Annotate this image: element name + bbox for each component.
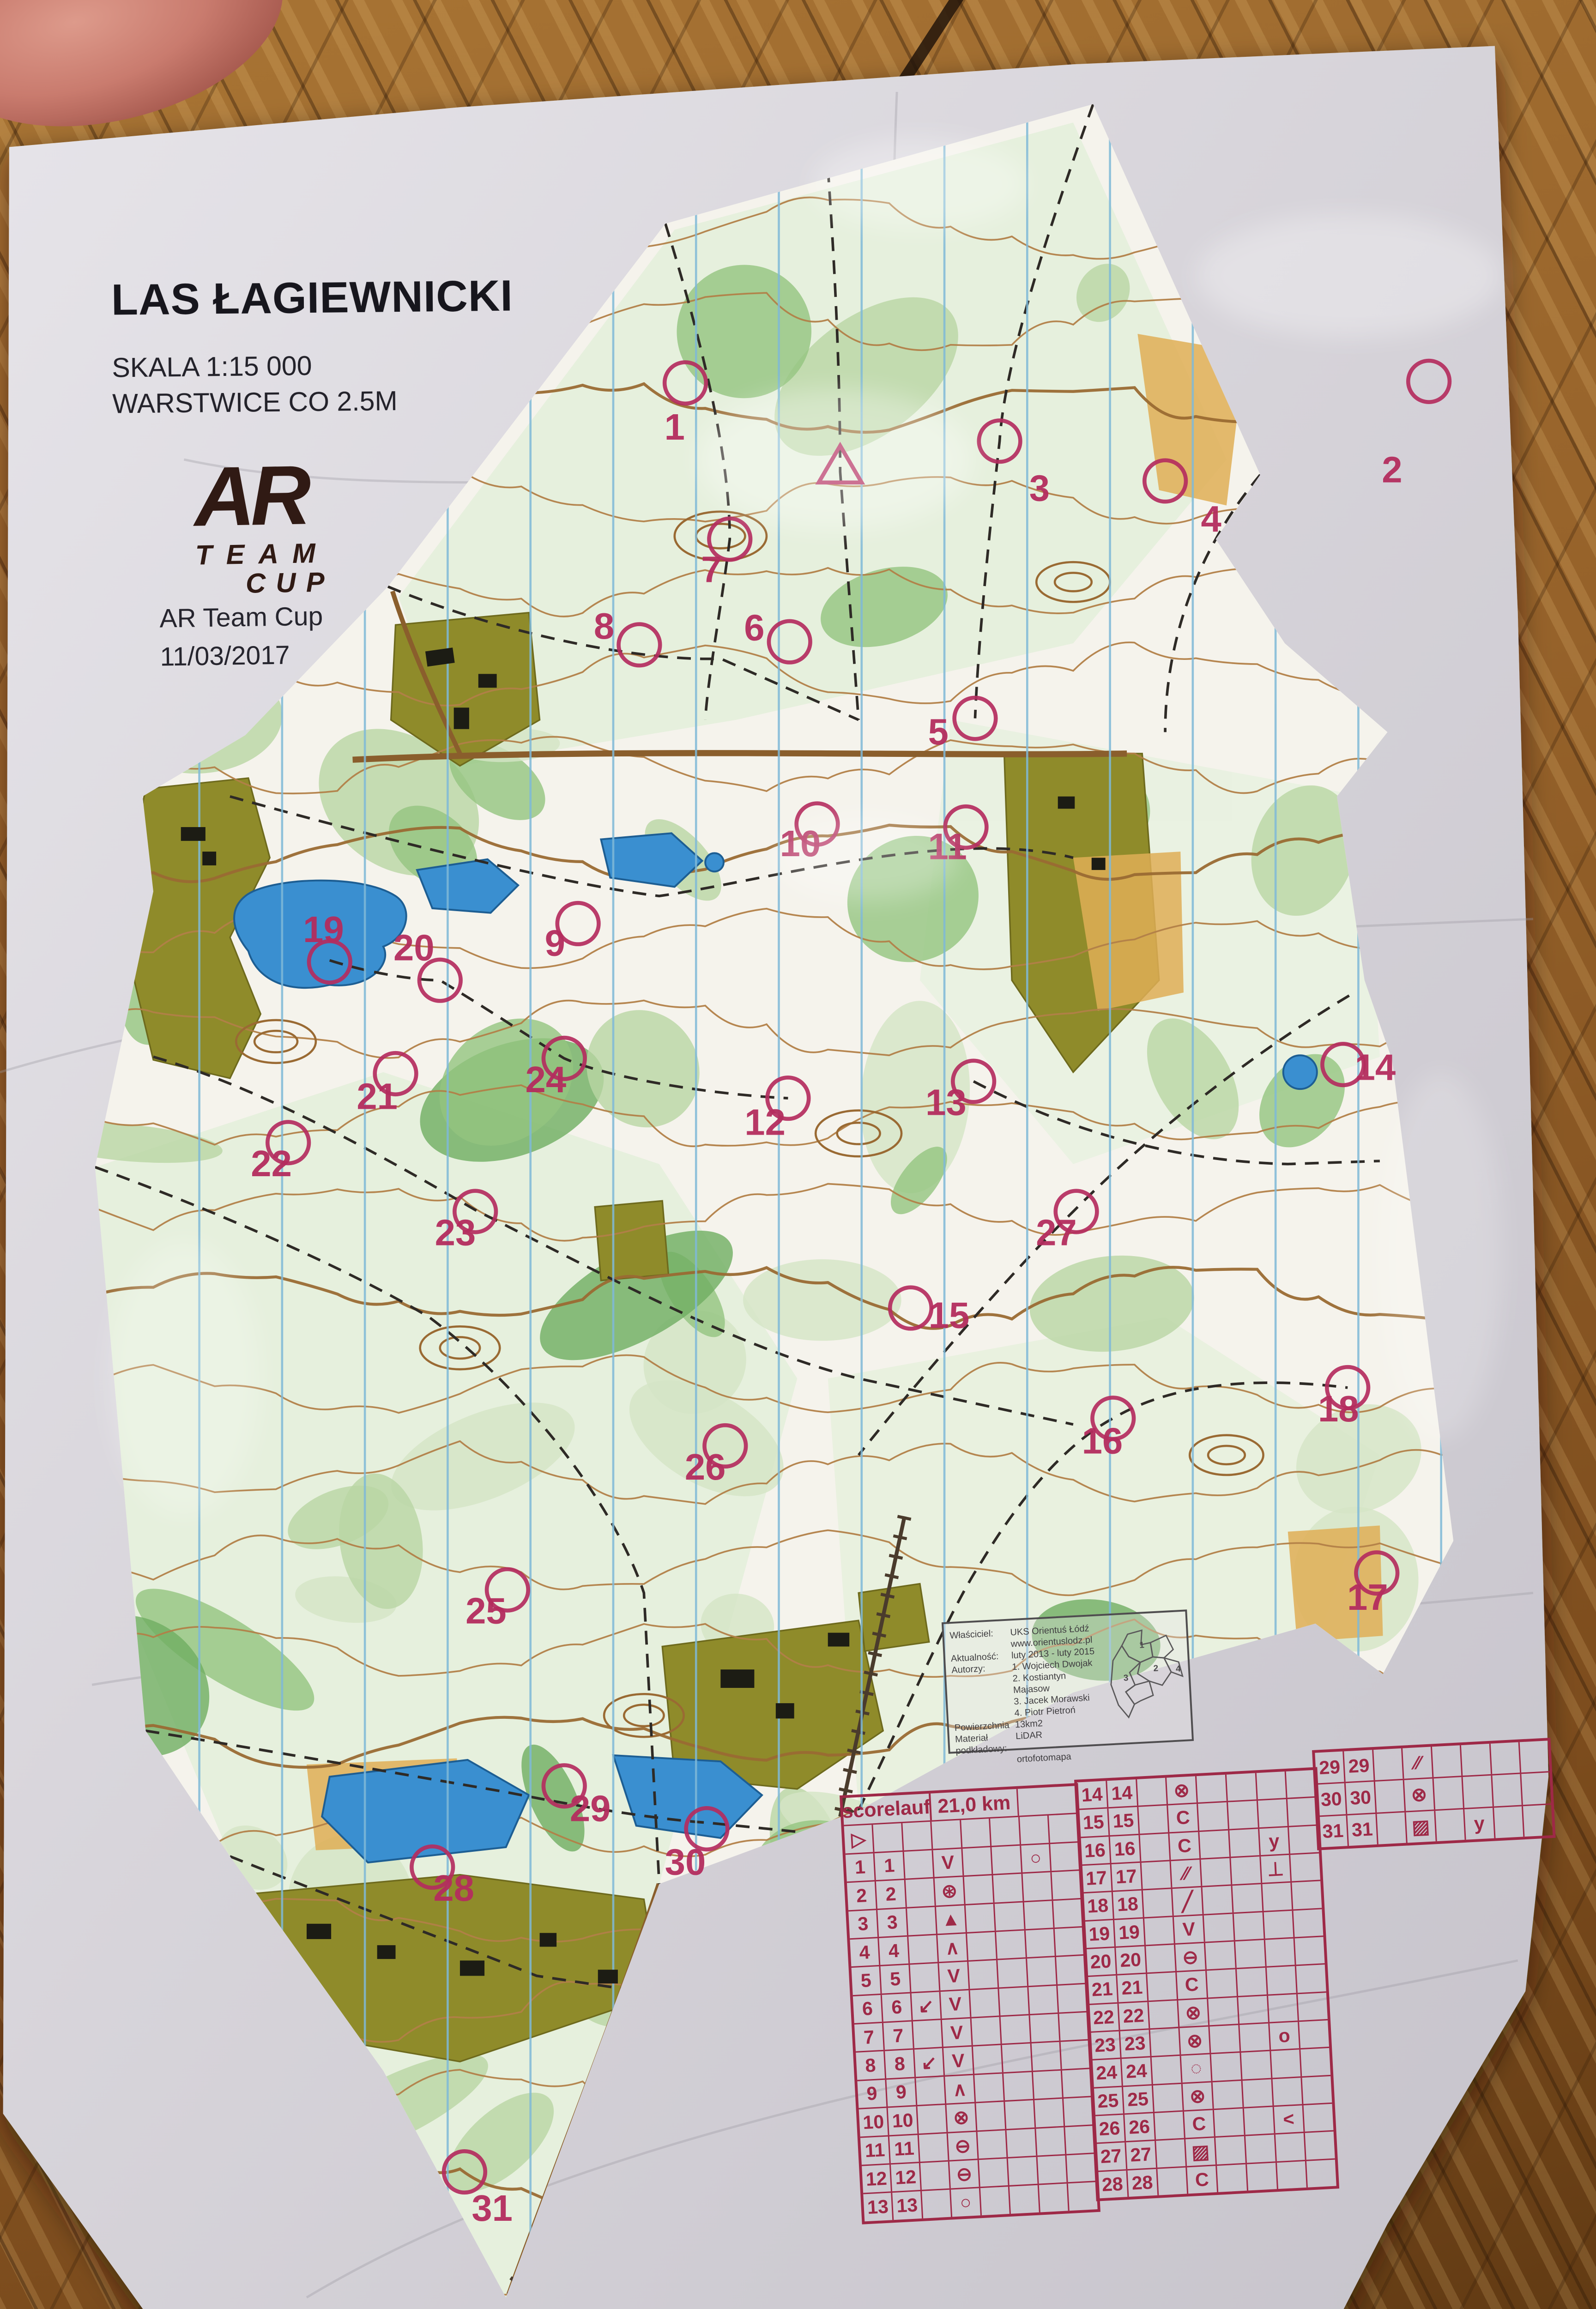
descr-cell-no: 22 — [1088, 2004, 1118, 2031]
descr-cell-d: ∕∕ — [1401, 1747, 1432, 1778]
descr-cell-h — [1290, 1881, 1322, 1910]
descr-cell-c — [916, 2105, 946, 2134]
descr-cell-no: 12 — [862, 2164, 891, 2193]
descr-cell-no: 2 — [847, 1881, 876, 1910]
descr-cell-e — [1214, 2136, 1245, 2164]
descr-cell-g: o — [1268, 2022, 1300, 2050]
descr-cell-d: ⊖ — [947, 2132, 977, 2160]
descr-cell-d: ⊖ — [1174, 1943, 1205, 1971]
course-length: 21,0 km — [928, 1789, 1017, 1820]
descr-cell-no: 4 — [850, 1938, 879, 1966]
descr-cell-f — [1228, 1829, 1259, 1857]
descr-cell-no: 8 — [856, 2051, 885, 2079]
map-title-block: LAS ŁAGIEWNICKI SKALA 1:15 000 WARSTWICE… — [111, 271, 514, 424]
descr-cell-no: 23 — [1090, 2031, 1120, 2059]
descr-cell-code: 10 — [887, 2106, 917, 2135]
descr-cell-e — [1208, 2025, 1239, 2053]
descr-cell-g — [1022, 1901, 1053, 1929]
descr-cell-g: < — [1272, 2105, 1304, 2134]
descr-cell-c — [914, 2077, 945, 2105]
control-number-3: 3 — [1029, 468, 1050, 509]
descr-cell-d: ▨ — [1404, 1810, 1435, 1842]
control-number-27: 27 — [1036, 1212, 1077, 1253]
descr-cell-e — [960, 1819, 990, 1848]
event-name: AR Team Cup — [159, 598, 323, 638]
descr-cell-e — [1205, 1970, 1237, 1998]
descr-cell-e — [966, 1932, 996, 1961]
control-number-2: 2 — [1382, 449, 1402, 490]
descr-cell-c — [919, 2162, 949, 2190]
descr-cell-code: 21 — [1116, 1974, 1147, 2002]
control-number-22: 22 — [251, 1143, 292, 1184]
descr-cell-f — [1225, 1773, 1256, 1801]
descr-cell-code: 14 — [1106, 1779, 1137, 1807]
descr-cell-d: ▲ — [935, 1905, 965, 1934]
control-number-14: 14 — [1355, 1046, 1396, 1088]
descr-cell-no: 13 — [863, 2193, 892, 2221]
region-number-2: 2 — [1153, 1664, 1159, 1674]
descr-cell-h — [1302, 2104, 1334, 2132]
descr-cell-c — [1153, 2112, 1184, 2140]
descr-cell-d: ⊗ — [1403, 1778, 1434, 1810]
descr-cell-e — [970, 2017, 1000, 2046]
descr-cell-code: 17 — [1110, 1863, 1141, 1891]
descr-cell-h — [1055, 1956, 1085, 1984]
descr-cell-g — [1493, 1806, 1523, 1838]
descr-cell-c — [1149, 2028, 1180, 2056]
descr-cell-e — [1215, 2164, 1247, 2193]
descr-cell-no: 5 — [851, 1966, 880, 1995]
descr-cell-e — [1432, 1777, 1463, 1809]
descr-cell-code: 5 — [879, 1965, 910, 1994]
descr-cell-h — [1292, 1909, 1324, 1937]
control-number-16: 16 — [1082, 1420, 1123, 1462]
descr-cell-f — [992, 1874, 1022, 1903]
descr-cell-h — [1288, 1826, 1319, 1854]
control-number-30: 30 — [665, 1842, 706, 1883]
descr-cell-f — [1004, 2100, 1034, 2129]
descr-cell-h — [1056, 1984, 1087, 2013]
course-name: scorelauf — [842, 1794, 930, 1825]
descr-cell-code: 6 — [881, 1993, 911, 2022]
descr-cell-h — [1298, 2020, 1329, 2049]
logo-team-text: TEAM — [195, 536, 334, 570]
descr-cell-f — [1001, 2044, 1031, 2073]
descr-cell-e — [1434, 1809, 1465, 1841]
descr-cell-f — [996, 1959, 1027, 1988]
descr-cell-e — [961, 1847, 991, 1876]
descr-cell-c — [1147, 2001, 1179, 2029]
descr-cell-code: 24 — [1120, 2058, 1151, 2086]
credit-label — [952, 1673, 1014, 1699]
descr-cell-f — [1007, 2157, 1037, 2186]
descr-cell-d: ○ — [949, 2188, 980, 2217]
ar-team-cup-logo: AR TEAM CUP — [193, 461, 335, 600]
descr-cell-f — [995, 1930, 1025, 1959]
descr-cell-f — [1242, 2107, 1274, 2135]
descr-cell-d: ╱ — [1171, 1888, 1203, 1916]
descr-cell-no: 27 — [1096, 2143, 1126, 2170]
photo-of-orienteering-map: { "title_block": { "title": "LAS ŁAGIEWN… — [0, 0, 1596, 2309]
descr-cell-e — [973, 2073, 1004, 2102]
descr-cell-h — [1295, 1965, 1326, 1993]
descr-cell-code: 22 — [1117, 2002, 1149, 2030]
descr-cell-h — [1061, 2069, 1091, 2097]
control-number-15: 15 — [929, 1295, 970, 1336]
control-number-5: 5 — [928, 711, 949, 752]
control-descriptions-sheet-2: 1414⊗1515C1616Cy1717∕∕⊥1818╱1919V2020⊖21… — [1074, 1767, 1339, 2201]
descr-cell-d: ⊛ — [933, 1877, 964, 1905]
descr-cell-no: 9 — [857, 2079, 886, 2108]
descr-cell-no: 28 — [1097, 2170, 1127, 2198]
descr-cell-code: 26 — [1123, 2113, 1155, 2141]
descr-cell-e — [964, 1904, 994, 1932]
descr-cell-h — [1522, 1804, 1553, 1836]
descr-cell-code: 23 — [1118, 2030, 1150, 2058]
descr-cell-code: 3 — [876, 1908, 907, 1937]
descr-cell-code: 15 — [1107, 1807, 1138, 1836]
control-number-4: 4 — [1201, 498, 1221, 539]
descr-cell-no: 14 — [1077, 1781, 1107, 1809]
control-number-23: 23 — [435, 1212, 476, 1253]
descr-cell-code: 12 — [889, 2163, 920, 2192]
descr-cell-c — [1136, 1778, 1167, 1806]
descr-cell-no: 21 — [1087, 1976, 1117, 2003]
descr-cell-f — [990, 1845, 1021, 1874]
descr-cell-e — [1431, 1745, 1462, 1777]
descr-cell-no: 29 — [1315, 1751, 1344, 1783]
descr-cell-g: ○ — [1020, 1844, 1050, 1873]
logo-cup-text: CUP — [245, 565, 335, 598]
descr-cell-e — [1211, 2081, 1243, 2109]
descr-cell-c — [901, 1822, 931, 1850]
descr-cell-e — [967, 1960, 997, 1989]
descr-cell-no: 26 — [1094, 2115, 1124, 2143]
descr-cell-c — [902, 1850, 933, 1879]
control-number-6: 6 — [744, 607, 764, 648]
descr-cell-d: V — [1173, 1916, 1204, 1944]
descr-cell-h — [1062, 2097, 1093, 2126]
descr-cell-code: 9 — [885, 2078, 916, 2107]
descr-cell-c — [1156, 2167, 1187, 2195]
credit-label: Materiał podkładowy: — [955, 1731, 1017, 1757]
descr-cell-code: 13 — [891, 2191, 921, 2220]
descr-cell-c — [907, 1935, 937, 1964]
descr-cell-h — [1059, 2041, 1090, 2069]
descr-cell-d: ⊗ — [945, 2103, 976, 2132]
descr-cell-e — [979, 2187, 1010, 2215]
descr-cell-code: 30 — [1344, 1782, 1375, 1813]
descr-cell-d: ∕∕ — [1170, 1860, 1201, 1888]
control-number-24: 24 — [526, 1059, 567, 1100]
descr-cell-h — [1304, 2132, 1335, 2160]
descr-cell-no: 25 — [1093, 2087, 1123, 2115]
descr-cell-code: 8 — [883, 2050, 914, 2079]
descr-cell-no: 6 — [853, 1995, 882, 2023]
descr-cell-code: 29 — [1343, 1750, 1374, 1782]
control-descriptions-sheet-1: scorelauf21,0 km▷11V○22⊛33▲44∧55V66↙V77V… — [840, 1783, 1100, 2224]
descr-cell-f — [1231, 1885, 1262, 1913]
descr-cell-h — [1065, 2154, 1095, 2182]
descr-cell-f: y — [1463, 1807, 1494, 1839]
descr-cell-no: 18 — [1083, 1892, 1113, 1920]
descr-cell-code — [872, 1823, 902, 1852]
descr-cell-c — [1151, 2084, 1183, 2112]
descr-cell-h — [1294, 1937, 1325, 1965]
descr-cell-c — [917, 2133, 948, 2162]
descr-cell-no: 11 — [860, 2136, 889, 2164]
descr-cell-d: V — [938, 1962, 968, 1990]
descr-cell-g: ⊥ — [1259, 1855, 1291, 1883]
control-descriptions-sheet-3: 2929∕∕3030⊗3131▨y — [1312, 1737, 1555, 1850]
descr-cell-f — [1229, 1857, 1261, 1885]
descr-cell-g — [1265, 1966, 1296, 1995]
control-number-29: 29 — [570, 1788, 611, 1829]
descr-cell-h — [1299, 2048, 1330, 2076]
descr-cell-c — [1146, 1973, 1177, 2001]
descr-cell-f — [999, 2015, 1030, 2044]
descr-cell-c: ↙ — [913, 2048, 943, 2077]
descr-cell-no: 7 — [854, 2023, 883, 2051]
descr-cell-h — [1520, 1772, 1551, 1804]
control-number-9: 9 — [545, 923, 565, 964]
descr-cell-c — [1141, 1889, 1173, 1917]
descr-cell-e — [1197, 1802, 1228, 1831]
descr-cell-g — [1018, 1816, 1049, 1844]
descr-cell-f — [1002, 2072, 1033, 2101]
descr-cell-no: 30 — [1317, 1783, 1346, 1815]
descr-cell-c — [1137, 1806, 1168, 1834]
descr-cell-g — [1033, 2099, 1064, 2128]
descr-cell-d: ⊗ — [1181, 2082, 1213, 2110]
descr-cell-f — [997, 1987, 1028, 2016]
descr-cell-g — [1263, 1939, 1295, 1967]
region-number-1: 1 — [1139, 1640, 1145, 1650]
course-header-spacer — [1016, 1786, 1076, 1816]
descr-cell-code: 31 — [1346, 1813, 1377, 1845]
control-number-31: 31 — [472, 2188, 513, 2229]
descr-cell-g — [1027, 1986, 1058, 2014]
descr-cell-c — [1143, 1917, 1174, 1945]
descr-cell-c — [1373, 1780, 1404, 1812]
descr-cell-no: 17 — [1082, 1864, 1112, 1892]
control-number-13: 13 — [925, 1082, 967, 1123]
descr-cell-e — [1209, 2053, 1241, 2081]
region-number-4: 4 — [1176, 1664, 1181, 1674]
descr-cell-e — [974, 2102, 1005, 2130]
descr-cell-c — [1155, 2140, 1186, 2168]
descr-cell-e — [1213, 2109, 1244, 2137]
control-number-1: 1 — [665, 406, 685, 447]
descr-cell-g — [1266, 1994, 1298, 2022]
descr-cell-h — [1058, 2013, 1088, 2041]
descr-cell-code: 11 — [888, 2135, 919, 2164]
descr-cell-d: C — [1175, 1971, 1207, 1999]
descr-cell-code: 18 — [1111, 1891, 1143, 1919]
descr-cell-no: 20 — [1086, 1948, 1116, 1976]
descr-cell-g — [1030, 2042, 1060, 2071]
descr-cell-d: ⊖ — [948, 2160, 979, 2188]
descr-cell-g — [1491, 1774, 1522, 1806]
descr-cell-no: 15 — [1078, 1809, 1108, 1837]
descr-cell-no: 31 — [1318, 1815, 1348, 1847]
descr-cell-d: ⊗ — [1179, 2027, 1210, 2055]
descr-cell-d: ∧ — [943, 2075, 974, 2103]
descr-cell-g — [1261, 1883, 1292, 1911]
map-credits-box: Właściciel:UKS Orientuś Łódźwww.orientus… — [942, 1609, 1194, 1754]
descr-cell-f — [1462, 1776, 1493, 1807]
control-number-7: 7 — [701, 549, 721, 590]
event-date: 11/03/2017 — [160, 635, 324, 676]
region-number-3: 3 — [1123, 1673, 1129, 1683]
descr-cell-d: C — [1185, 2166, 1217, 2194]
descr-cell-f — [1008, 2185, 1039, 2214]
descr-cell-no: 24 — [1092, 2059, 1122, 2087]
descr-cell-g — [1271, 2078, 1302, 2106]
descr-cell-code: 1 — [873, 1852, 904, 1880]
control-number-20: 20 — [393, 927, 435, 968]
control-number-18: 18 — [1318, 1388, 1359, 1429]
descr-cell-no: 19 — [1084, 1920, 1114, 1948]
descr-cell-g — [1021, 1872, 1052, 1901]
descr-cell-d: ⊗ — [1177, 1999, 1208, 2027]
descr-cell-f — [1239, 2051, 1271, 2079]
descr-cell-h — [1050, 1871, 1081, 1899]
descr-cell-e — [972, 2045, 1002, 2074]
descr-cell-h — [1301, 2076, 1332, 2104]
map-title: LAS ŁAGIEWNICKI — [111, 271, 513, 325]
descr-cell-e — [1207, 1997, 1238, 2025]
descr-cell-e — [1204, 1942, 1235, 1970]
descr-cell-c — [1138, 1833, 1170, 1862]
control-number-26: 26 — [685, 1446, 726, 1487]
event-block: AR Team Cup 11/03/2017 — [159, 598, 323, 676]
descr-cell-g — [1270, 2050, 1301, 2078]
descr-cell-d: C — [1167, 1804, 1198, 1832]
descr-cell-code: 7 — [882, 2022, 913, 2050]
descr-cell-f — [1244, 2135, 1276, 2163]
descr-cell-g — [1028, 2014, 1059, 2043]
descr-cell-e — [977, 2158, 1008, 2187]
region-sketch: 1234 — [1103, 1615, 1189, 1735]
descr-cell-h — [1296, 1993, 1328, 2021]
descr-cell-e — [962, 1875, 993, 1904]
descr-cell-g — [1262, 1911, 1294, 1939]
descr-cell-f — [1233, 1940, 1265, 1968]
descr-cell-d: V — [932, 1849, 962, 1877]
map-scale: SKALA 1:15 000 — [112, 348, 514, 383]
descr-cell-h — [1049, 1843, 1079, 1871]
descr-cell-no: 1 — [846, 1853, 875, 1881]
control-number-17: 17 — [1347, 1577, 1388, 1618]
descr-cell-f — [989, 1817, 1019, 1846]
descr-cell-h — [1053, 1928, 1084, 1956]
descr-cell-code: 19 — [1113, 1919, 1144, 1947]
descr-cell-f — [1005, 2128, 1036, 2157]
descr-cell-c — [904, 1879, 935, 1907]
logo-ar-text: AR — [193, 461, 333, 531]
descr-cell-code: 25 — [1122, 2085, 1153, 2114]
descr-cell-f — [1245, 2163, 1277, 2191]
descr-cell-g — [1274, 2134, 1305, 2162]
descr-cell-h — [1285, 1770, 1316, 1798]
descr-cell-code: 20 — [1114, 1946, 1146, 1975]
descr-cell-c — [1140, 1862, 1171, 1890]
descr-cell-c: ↙ — [910, 1992, 940, 2020]
descr-cell-d — [930, 1820, 961, 1849]
descr-cell-c — [908, 1964, 939, 1992]
descr-cell-d: C — [1183, 2110, 1214, 2139]
descr-cell-no: ▷ — [844, 1825, 873, 1853]
control-number-21: 21 — [357, 1076, 398, 1117]
descr-cell-f — [1237, 1996, 1268, 2024]
descr-cell-h — [1305, 2159, 1336, 2188]
descr-cell-g — [1031, 2070, 1062, 2099]
descr-cell-g — [1256, 1800, 1288, 1828]
control-number-19: 19 — [303, 909, 344, 950]
descr-cell-e — [1203, 1914, 1234, 1942]
descr-cell-g — [1036, 2155, 1066, 2184]
descr-cell-g — [1275, 2161, 1306, 2189]
descr-cell-e — [1195, 1775, 1227, 1803]
control-number-25: 25 — [465, 1590, 507, 1632]
descr-cell-c — [920, 2190, 951, 2218]
descr-cell-code: 4 — [878, 1937, 908, 1965]
descr-cell-d: C — [1168, 1832, 1199, 1860]
descr-cell-c — [1150, 2056, 1181, 2084]
descr-cell-code: 2 — [875, 1880, 905, 1909]
descr-cell-f — [1232, 1912, 1263, 1940]
descr-cell-g — [1034, 2127, 1065, 2156]
descr-cell-g — [1255, 1771, 1286, 1800]
control-number-8: 8 — [594, 605, 614, 647]
descr-cell-h — [1286, 1798, 1318, 1826]
descr-cell-g — [1024, 1929, 1054, 1958]
descr-cell-f — [1238, 2024, 1270, 2052]
descr-cell-e — [976, 2130, 1006, 2159]
descr-cell-c — [1144, 1945, 1175, 1973]
descr-cell-h — [1052, 1899, 1082, 1928]
descr-cell-d: ◌ — [1180, 2055, 1211, 2083]
descr-cell-no: 3 — [848, 1910, 877, 1938]
descr-cell-f — [993, 1902, 1024, 1931]
control-number-28: 28 — [433, 1868, 474, 1909]
descr-cell-h — [1047, 1814, 1078, 1843]
descr-cell-g — [1026, 1957, 1056, 1986]
descr-cell-h — [1289, 1854, 1320, 1882]
descr-cell-c — [906, 1907, 936, 1935]
descr-cell-no: 10 — [858, 2108, 888, 2136]
descr-cell-no: 16 — [1080, 1837, 1110, 1864]
descr-cell-c — [1372, 1748, 1403, 1780]
descr-cell-d: V — [939, 1990, 970, 2019]
descr-cell-h — [1067, 2182, 1097, 2211]
descr-cell-f — [1227, 1801, 1258, 1829]
descr-cell-d: ▨ — [1184, 2138, 1215, 2166]
descr-cell-code: 27 — [1124, 2141, 1156, 2170]
descr-cell-e — [1199, 1858, 1231, 1886]
descr-cell-e — [1201, 1886, 1232, 1914]
descr-cell-h — [1064, 2126, 1094, 2154]
descr-cell-e — [1198, 1831, 1229, 1859]
descr-cell-d: ∧ — [936, 1934, 967, 1962]
descr-cell-f — [1235, 1968, 1267, 1996]
map-contour-interval: WARSTWICE CO 2.5M — [112, 384, 514, 419]
control-number-12: 12 — [744, 1102, 786, 1143]
descr-cell-f — [1241, 2079, 1272, 2107]
descr-cell-g — [1489, 1742, 1520, 1774]
descr-cell-c — [912, 2020, 942, 2049]
